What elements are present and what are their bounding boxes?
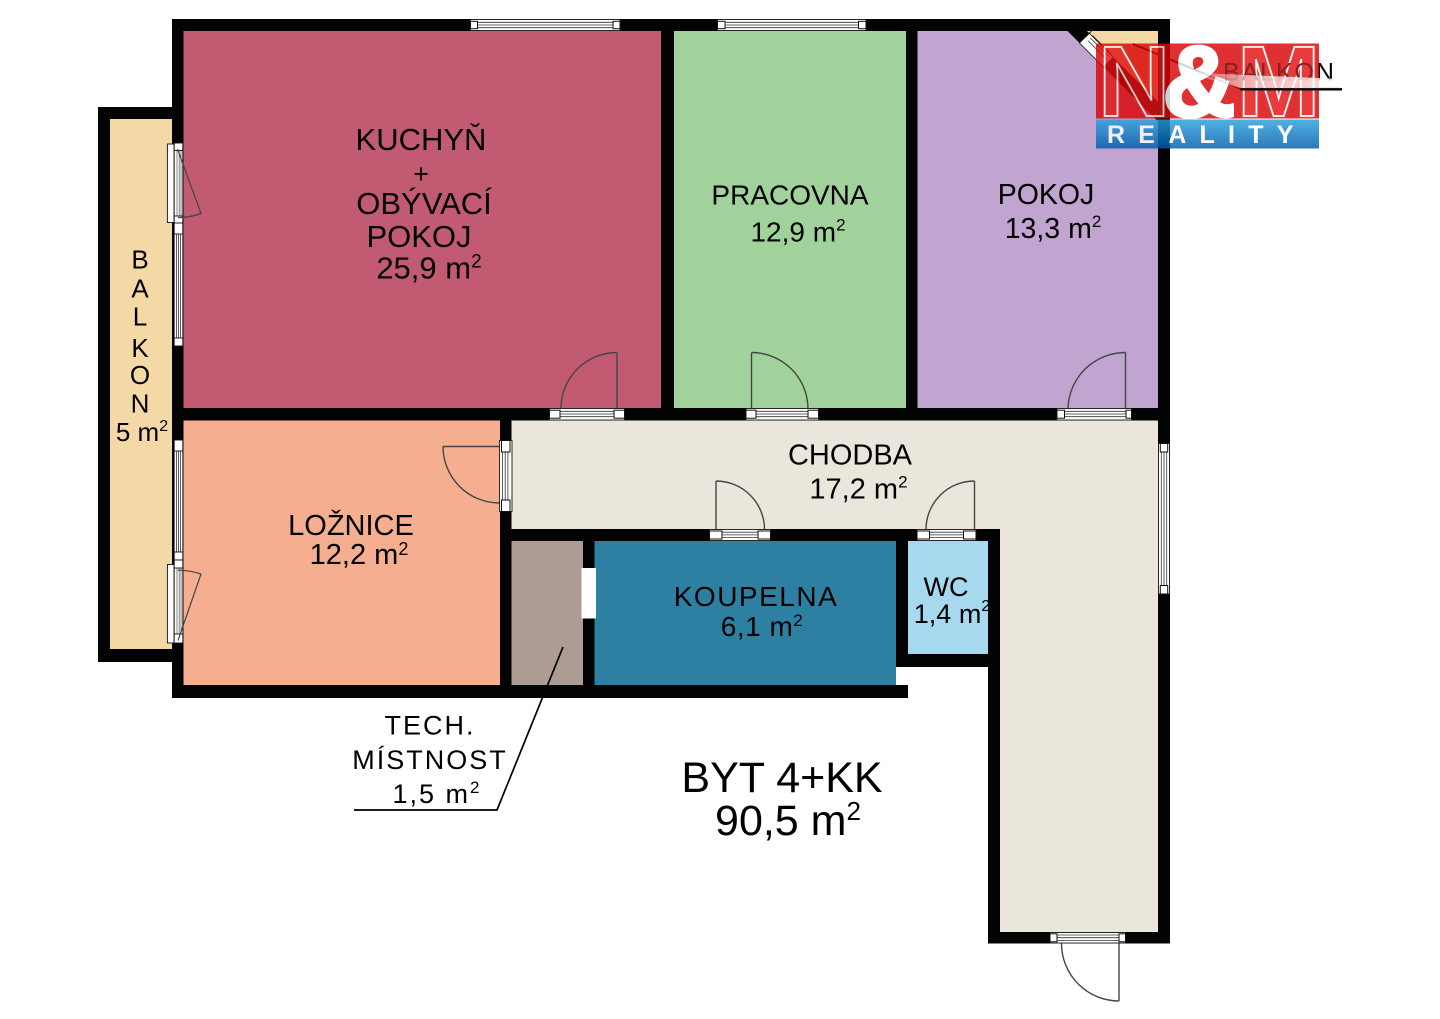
svg-text:B: B — [131, 245, 148, 275]
svg-text:L: L — [133, 302, 147, 332]
svg-text:PRACOVNA: PRACOVNA — [711, 180, 868, 211]
svg-text:LOŽNICE: LOŽNICE — [288, 509, 414, 542]
svg-text:OBÝVACÍ: OBÝVACÍ — [356, 186, 492, 221]
svg-text:1,5 m2: 1,5 m2 — [393, 778, 482, 809]
svg-text:KUCHYŇ: KUCHYŇ — [356, 122, 487, 157]
svg-text:BYT 4+KK: BYT 4+KK — [681, 754, 883, 802]
svg-text:CHODBA: CHODBA — [788, 440, 913, 472]
svg-text:90,5 m2: 90,5 m2 — [715, 796, 861, 845]
svg-text:REALITY: REALITY — [1107, 121, 1306, 149]
svg-text:+: + — [413, 159, 429, 189]
svg-text:MÍSTNOST: MÍSTNOST — [352, 745, 508, 775]
svg-text:WC: WC — [924, 572, 969, 602]
svg-text:KOUPELNA: KOUPELNA — [674, 581, 839, 612]
svg-text:1,4 m2: 1,4 m2 — [914, 598, 991, 629]
svg-text:POKOJ: POKOJ — [366, 219, 471, 254]
svg-text:13,3 m2: 13,3 m2 — [1005, 212, 1102, 245]
svg-text:N: N — [131, 389, 150, 419]
svg-text:25,9 m2: 25,9 m2 — [376, 251, 481, 286]
svg-text:TECH.: TECH. — [385, 711, 476, 741]
svg-text:A: A — [131, 274, 149, 304]
svg-text:K: K — [131, 333, 149, 363]
svg-text:POKOJ: POKOJ — [998, 179, 1095, 211]
svg-text:6,1 m2: 6,1 m2 — [721, 611, 804, 642]
svg-text:12,2 m2: 12,2 m2 — [310, 539, 409, 571]
svg-text:12,9 m2: 12,9 m2 — [750, 216, 845, 248]
svg-text:O: O — [130, 360, 150, 390]
svg-text:17,2 m2: 17,2 m2 — [809, 473, 907, 506]
